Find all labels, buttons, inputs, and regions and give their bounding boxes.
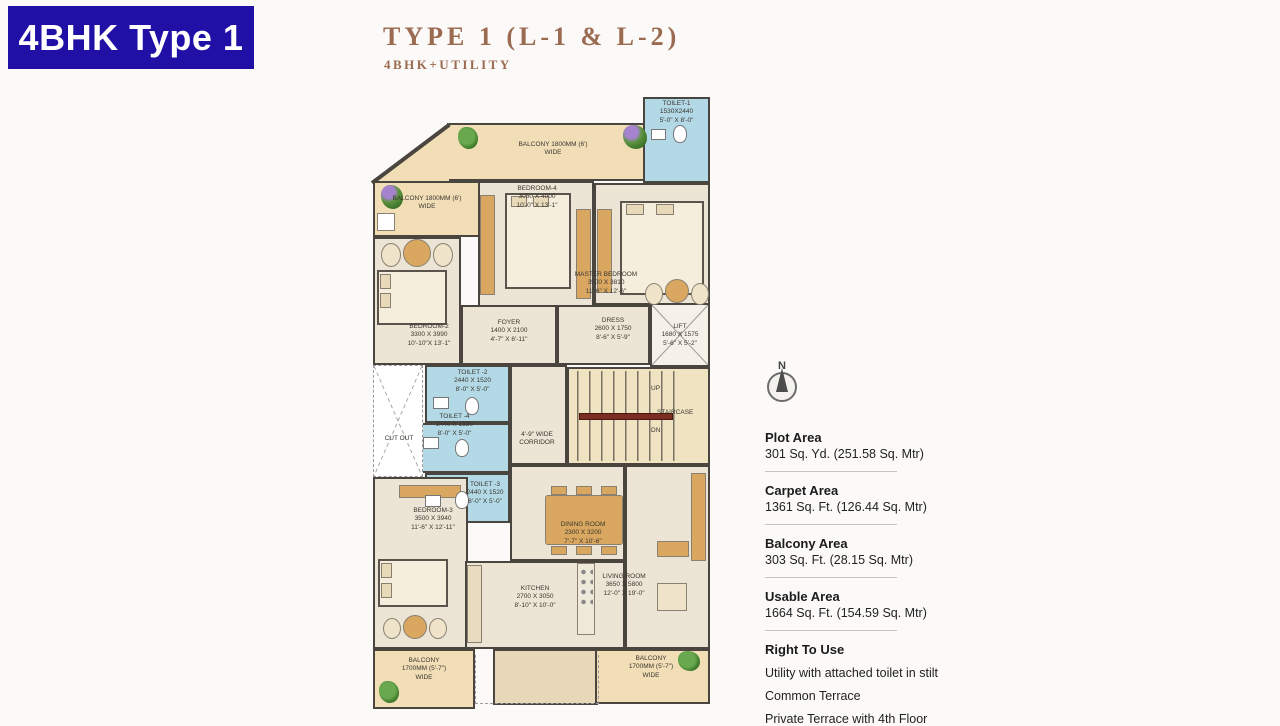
divider (765, 630, 897, 631)
area-label: Carpet Area (765, 483, 955, 498)
kitchen-counter-left (467, 565, 482, 643)
table-master (665, 279, 689, 303)
wc-toilet4 (455, 439, 469, 457)
dining-chair (576, 546, 592, 555)
pillow (381, 583, 392, 598)
balcony-box (377, 213, 395, 231)
right-to-use-item: Private Terrace with 4th Floor (765, 712, 955, 726)
label-living: LIVING ROOM3650 X 580012'-0" X 19'-0" (578, 573, 670, 598)
pillow (656, 204, 674, 215)
dining-chair (601, 546, 617, 555)
area-details-panel: Plot Area 301 Sq. Yd. (251.58 Sq. Mtr) C… (765, 430, 955, 726)
label-balcony-bottom-right: BALCONY1700MM (5'-7")WIDE (601, 655, 701, 680)
pillow (626, 204, 644, 215)
label-toilet-3: TOILET -32440 X 15208'-0" X 5'-0" (445, 481, 525, 506)
label-balcony-bottom-left: BALCONY1700MM (5'-7")WIDE (375, 657, 473, 682)
label-dress: DRESS2600 X 17508'-6" X 5'-9" (569, 317, 657, 342)
label-bedroom-4: BEDROOM-43050 X 400010'-0" X 13'-1" (485, 185, 589, 210)
plan-title: TYPE 1 (L-1 & L-2) (383, 22, 680, 52)
area-value: 1664 Sq. Ft. (154.59 Sq. Mtr) (765, 606, 955, 620)
right-to-use-item: Common Terrace (765, 689, 955, 703)
sofa-living-small (657, 541, 689, 557)
label-corridor: 4'-9" WIDECORRIDOR (499, 431, 575, 448)
area-block: Usable Area 1664 Sq. Ft. (154.59 Sq. Mtr… (765, 589, 955, 631)
right-to-use-heading: Right To Use (765, 642, 955, 657)
chair-master-left (645, 283, 663, 305)
plant (379, 681, 399, 703)
sofa-living-right (691, 473, 706, 561)
chair-bedroom3-right (429, 618, 447, 639)
area-block: Plot Area 301 Sq. Yd. (251.58 Sq. Mtr) (765, 430, 955, 472)
chair-master-right (691, 283, 709, 305)
area-label: Usable Area (765, 589, 955, 604)
label-dining: DINING ROOM2300 X 32007'-7" X 10'-6" (533, 521, 633, 546)
label-lift: LIFT1680 X 15755'-6" X 5'-2" (653, 323, 707, 348)
floor-plan: TOILET-11530X24405'-0" X 8'-0" BALCONY 1… (373, 97, 710, 710)
label-stair-up: UP (651, 385, 681, 393)
chair-bedroom2-right (433, 243, 453, 267)
label-bedroom-3: BEDROOM-33500 X 394011'-6" X 12'-11" (383, 507, 483, 532)
label-stair-dn: DN (651, 427, 681, 435)
right-to-use-item: Utility with attached toilet in stilt (765, 666, 955, 680)
north-arrow-icon (776, 368, 788, 392)
pillow (380, 274, 391, 289)
table-bedroom3 (403, 615, 427, 639)
dining-chair (551, 486, 567, 495)
label-balcony-left: BALCONY 1800MM (6')WIDE (375, 195, 479, 212)
area-label: Plot Area (765, 430, 955, 445)
chair-bedroom3-left (383, 618, 401, 639)
label-toilet-2: TOILET -22440 X 15208'-0" X 5'-0" (435, 369, 510, 394)
unit-type-badge: 4BHK Type 1 (8, 6, 254, 69)
label-master-bedroom: MASTER BEDROOM3500 X 381011'-6" X 12'-6" (573, 271, 639, 296)
label-toilet-4: TOILET -42440 X 15208'-0" X 5'-0" (417, 413, 492, 438)
area-block: Carpet Area 1361 Sq. Ft. (126.44 Sq. Mtr… (765, 483, 955, 525)
label-staircase: STAIRCASE (657, 409, 709, 417)
label-cut-out: CUT OUT (373, 435, 425, 443)
area-value: 303 Sq. Ft. (28.15 Sq. Mtr) (765, 553, 955, 567)
dining-chair (601, 486, 617, 495)
divider (765, 524, 897, 525)
room-cut-out (373, 365, 423, 477)
dining-chair (551, 546, 567, 555)
label-toilet-1: TOILET-11530X24405'-0" X 8'-0" (643, 100, 710, 125)
sink-toilet1 (651, 129, 666, 140)
area-value: 1361 Sq. Ft. (126.44 Sq. Mtr) (765, 500, 955, 514)
chair-bedroom2-left (381, 243, 401, 267)
plan-subtitle: 4BHK+UTILITY (384, 57, 512, 73)
terrace-dashed-boundary (475, 655, 599, 704)
divider (765, 577, 897, 578)
table-bedroom2 (403, 239, 431, 267)
pillow (381, 563, 392, 578)
sink-toilet2 (433, 397, 449, 409)
pillow (380, 293, 391, 308)
area-block: Balcony Area 303 Sq. Ft. (28.15 Sq. Mtr) (765, 536, 955, 578)
label-foyer: FOYER1400 X 21004'-7" X 6'-11" (465, 319, 553, 344)
label-bedroom-2: BEDROOM-23300 X 399010'-10"X 13'-1" (379, 323, 479, 348)
sink-toilet4 (423, 437, 439, 449)
label-kitchen: KITCHEN2700 X 30508'-10" X 10'-0" (485, 585, 585, 610)
divider (765, 471, 897, 472)
area-label: Balcony Area (765, 536, 955, 551)
sink-toilet3 (425, 495, 441, 507)
north-compass: N (762, 360, 802, 402)
room-corridor (510, 365, 567, 465)
area-value: 301 Sq. Yd. (251.58 Sq. Mtr) (765, 447, 955, 461)
label-balcony-top: BALCONY 1800MM (6')WIDE (468, 141, 638, 158)
dining-chair (576, 486, 592, 495)
wc-toilet1 (673, 125, 687, 143)
compass-dial (767, 372, 797, 402)
